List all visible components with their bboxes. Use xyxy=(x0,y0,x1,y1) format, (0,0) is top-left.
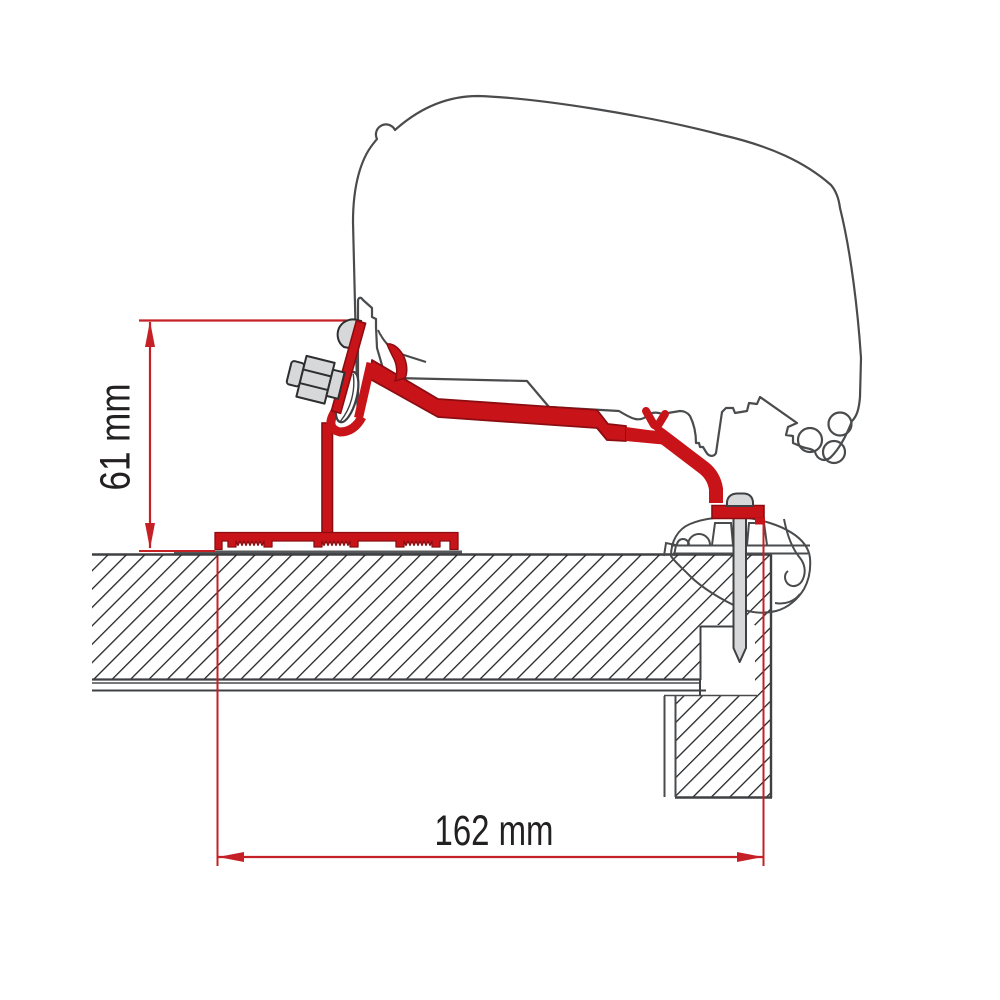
svg-text:162 mm: 162 mm xyxy=(435,807,554,855)
svg-text:61 mm: 61 mm xyxy=(92,384,140,491)
